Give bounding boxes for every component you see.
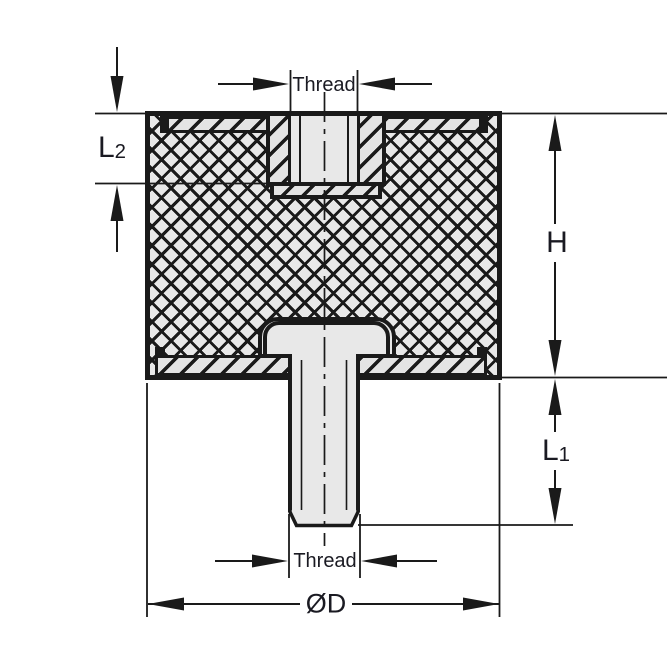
label-l2-main: L [98, 131, 115, 164]
label-thread-bottom-text: Thread [293, 550, 356, 572]
label-diameter-text: ØD [306, 589, 347, 619]
label-l2-sub: 2 [115, 141, 126, 163]
label-l1: L1 [542, 436, 570, 466]
technical-drawing-canvas: Thread L2 H L1 Thread ØD [0, 0, 670, 670]
label-thread-top: Thread [292, 75, 355, 95]
label-thread-bottom: Thread [293, 551, 356, 571]
extension-lines [95, 70, 667, 617]
label-h: H [546, 228, 568, 258]
label-diameter: ØD [306, 591, 347, 618]
label-h-text: H [546, 226, 568, 259]
label-l1-main: L [542, 434, 559, 467]
label-l1-sub: 1 [559, 444, 570, 466]
label-thread-top-text: Thread [292, 74, 355, 96]
label-l2: L2 [98, 133, 126, 163]
